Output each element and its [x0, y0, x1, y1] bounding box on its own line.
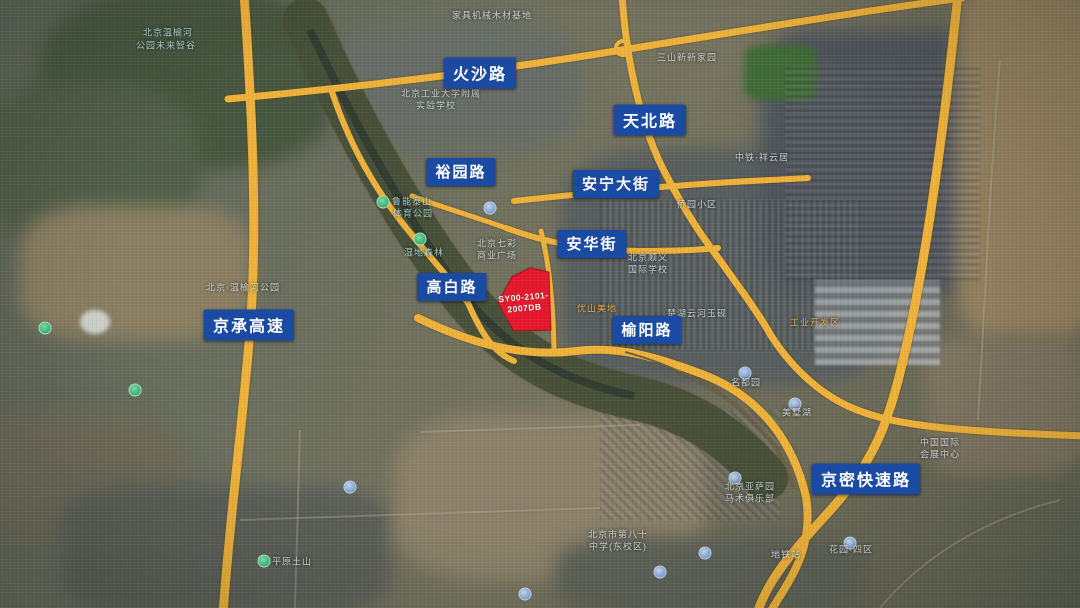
imagery-place-label: 花园·四区 — [829, 543, 873, 556]
imagery-place-label: 公园未来智谷 — [136, 39, 196, 52]
road-label-jingmi: 京密快速路 — [812, 464, 920, 495]
road-label-yuyuan: 裕园路 — [426, 158, 495, 186]
imagery-place-label: 名都园 — [731, 376, 761, 389]
road-label-yuyang: 榆阳路 — [612, 316, 681, 344]
road-jingcheng-expressway — [223, 0, 254, 608]
imagery-place-label: 中学(东校区) — [589, 540, 647, 553]
poi-marker — [258, 555, 271, 568]
road-jingmi-expressway — [757, 0, 958, 608]
imagery-place-label: 湿地森林 — [404, 246, 444, 259]
imagery-place-label: 北京温榆河 — [143, 26, 193, 39]
road-label-anhua: 安华街 — [557, 230, 626, 258]
imagery-place-label: 地铁站 — [771, 548, 801, 561]
poi-marker — [377, 196, 390, 209]
imagery-place-label: 会展中心 — [920, 448, 960, 461]
poi-marker — [519, 588, 532, 601]
road-label-jingcheng: 京承高速 — [204, 310, 294, 341]
poi-marker — [129, 384, 142, 397]
poi-marker — [654, 566, 667, 579]
imagery-place-label: 美墅湖 — [782, 406, 812, 419]
imagery-place-label: 体育公园 — [393, 207, 433, 220]
poi-marker — [344, 481, 357, 494]
imagery-place-label: 中铁·祥云居 — [735, 151, 789, 164]
imagery-place-label: 国际学校 — [628, 263, 668, 276]
poi-marker — [484, 202, 497, 215]
imagery-place-label: 工业开发区 — [790, 316, 840, 329]
road-label-gaobai: 高白路 — [417, 273, 486, 301]
poi-marker — [699, 547, 712, 560]
imagery-place-label: 实验学校 — [416, 99, 456, 112]
imagery-place-label: 马术俱乐部 — [725, 492, 775, 505]
satellite-map: 北京温榆河公园未来智谷家具机械木材基地三山新新家园北京工业大学附属实验学校中铁·… — [0, 0, 1080, 608]
imagery-place-label: 北京·温榆河公园 — [206, 281, 280, 294]
imagery-place-label: 平原土山 — [272, 555, 312, 568]
road-label-anning: 安宁大街 — [573, 170, 659, 198]
poi-marker — [414, 233, 427, 246]
imagery-place-label: 家具机械木材基地 — [452, 9, 532, 22]
imagery-place-label: 三山新新家园 — [657, 51, 717, 64]
road-anning — [514, 178, 808, 201]
imagery-place-label: 商业广场 — [477, 249, 517, 262]
site-parcel-code: SY00-2101- 2007DB — [498, 290, 550, 316]
imagery-place-label: 优山美地 — [577, 302, 617, 315]
road-label-tianbei: 天北路 — [614, 105, 686, 136]
road-label-huosha: 火沙路 — [444, 58, 516, 89]
imagery-place-label: 侨园小区 — [677, 198, 717, 211]
poi-marker — [39, 322, 52, 335]
